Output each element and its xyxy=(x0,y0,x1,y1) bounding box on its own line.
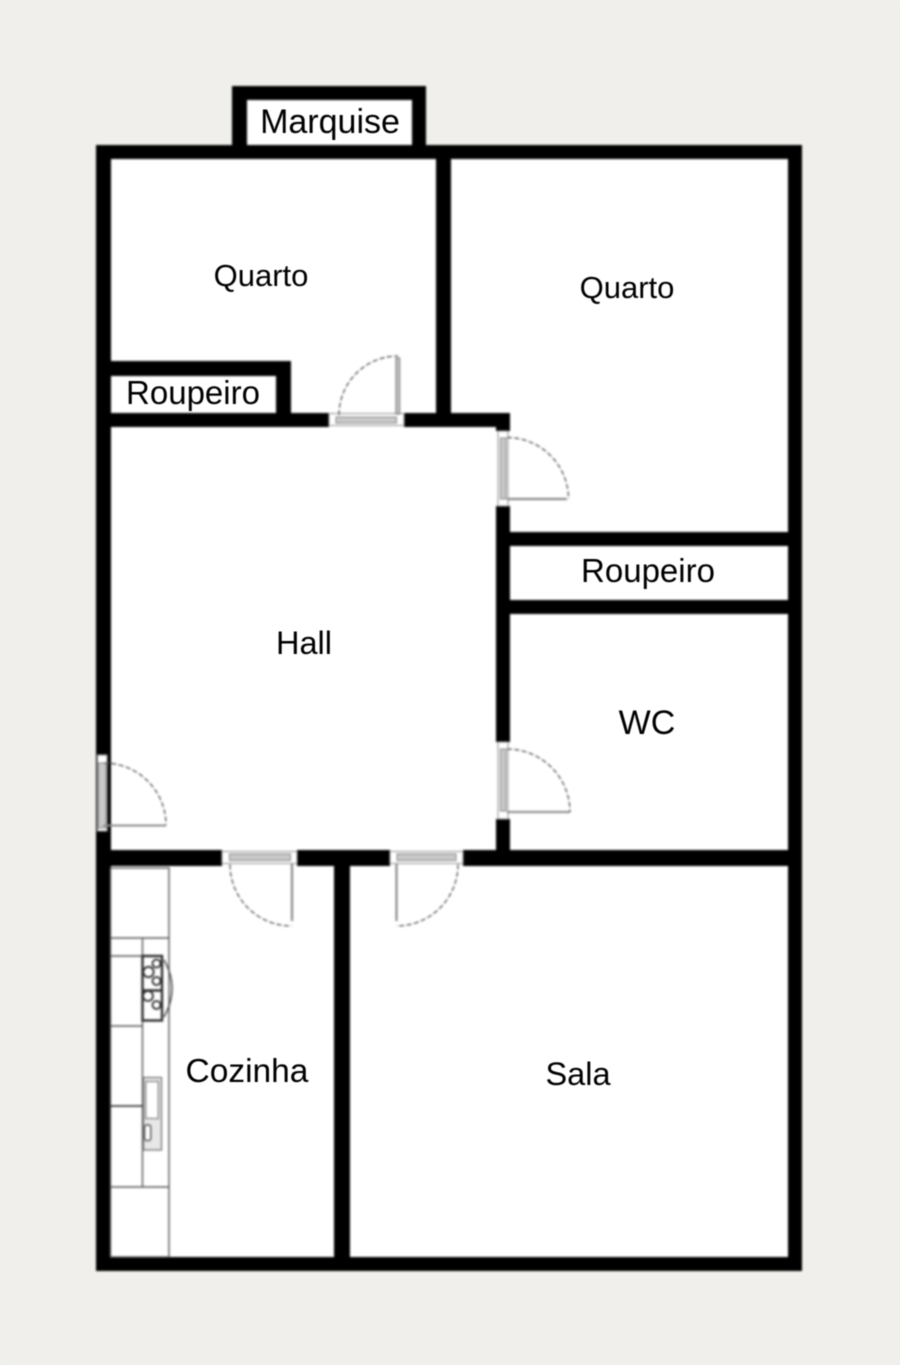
svg-text:Hall: Hall xyxy=(276,625,332,661)
svg-text:Roupeiro: Roupeiro xyxy=(126,374,260,411)
svg-text:Sala: Sala xyxy=(545,1056,611,1092)
svg-text:Marquise: Marquise xyxy=(260,103,400,141)
svg-text:Roupeiro: Roupeiro xyxy=(581,552,715,589)
svg-text:Quarto: Quarto xyxy=(214,258,309,293)
svg-text:Quarto: Quarto xyxy=(580,270,675,305)
svg-text:Cozinha: Cozinha xyxy=(186,1053,309,1090)
svg-text:WC: WC xyxy=(619,704,676,742)
